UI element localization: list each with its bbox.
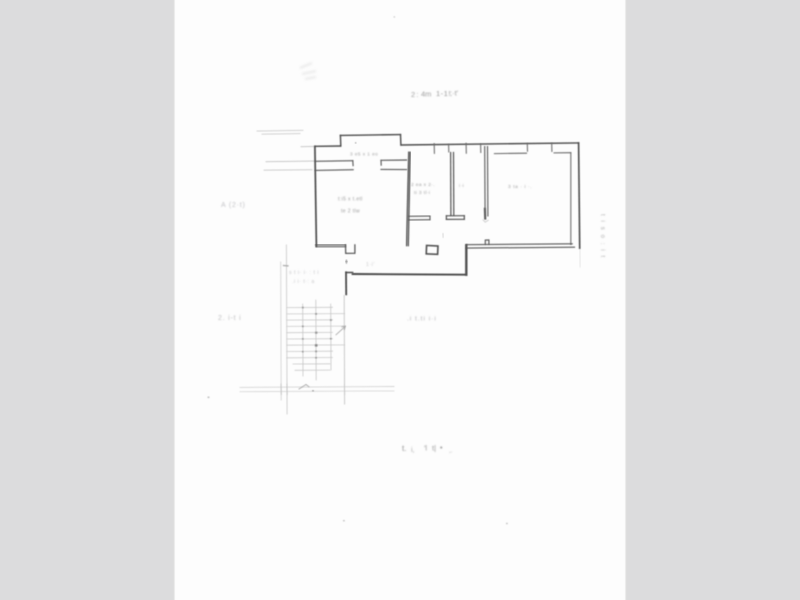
svg-text:t:i5 x t.etl: t:i5 x t.etl <box>338 197 363 203</box>
svg-text:2. i-t i: 2. i-t i <box>218 315 242 322</box>
svg-text:,.: ,. <box>449 448 453 455</box>
svg-text:3 ta · i ·.: 3 ta · i ·. <box>508 184 532 190</box>
svg-text:i ·i: i ·i <box>459 183 464 188</box>
svg-text:′l: ′l <box>424 444 427 453</box>
svg-text:4m: 4m <box>421 90 431 99</box>
svg-text:t|: t| <box>432 444 436 453</box>
svg-text:3 e5 x 1 eo: 3 e5 x 1 eo <box>350 152 378 157</box>
svg-text:t.: t. <box>402 444 406 453</box>
svg-text:1·i′: 1·i′ <box>366 262 375 268</box>
svg-text:A (2·t): A (2·t) <box>221 202 246 209</box>
svg-text:ti 3 tl·i: ti 3 tl·i <box>414 190 430 196</box>
svg-text:t i s o : i t: t i s o : i t <box>599 214 605 259</box>
svg-text:.i t.ti i·i: .i t.ti i·i <box>407 316 437 323</box>
svg-text:.i i· t·: a: .i i· t·: a <box>292 279 315 285</box>
svg-text:1-1!: 1-1! <box>436 89 451 98</box>
svg-text:i,: i, <box>411 447 415 454</box>
svg-text:2 ea x 2·.: 2 ea x 2·. <box>411 182 435 188</box>
svg-text:;·t′: ;·t′ <box>450 89 459 98</box>
svg-text:s t i· i· : t i: s t i· i· : t i <box>289 270 319 276</box>
svg-text:2:: 2: <box>411 90 420 99</box>
svg-text:te 2 tlw: te 2 tlw <box>341 209 360 215</box>
